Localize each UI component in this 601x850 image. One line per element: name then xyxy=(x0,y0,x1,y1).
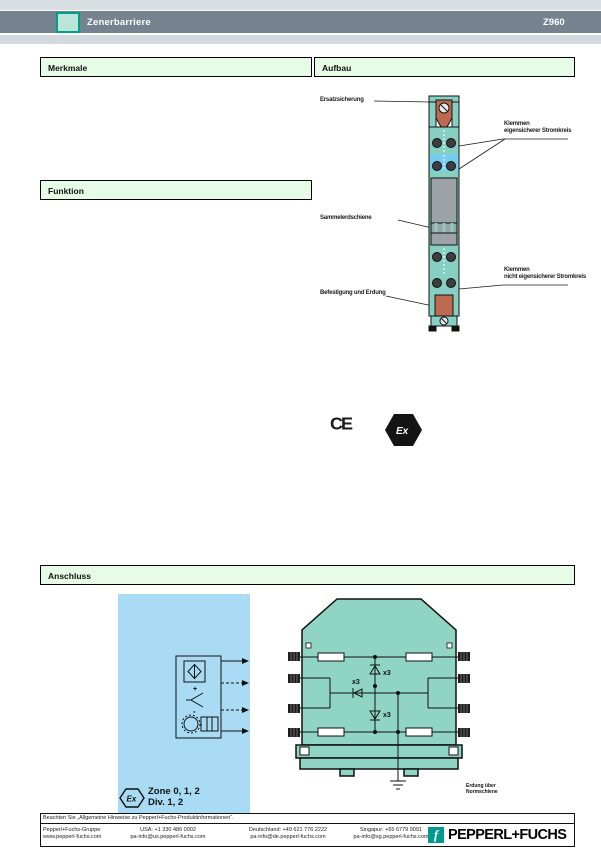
footer-usa-email: pa-info@us.pepperl-fuchs.com xyxy=(112,834,224,841)
brand-square-icon xyxy=(56,12,80,33)
footer-notice: Beachten Sie „Allgemeine Hinweise zu Pep… xyxy=(43,815,234,821)
model-number: Z960 xyxy=(543,17,565,28)
division-line: Div. 1, 2 xyxy=(148,797,200,808)
sensor-minus-sign: - xyxy=(193,707,196,716)
rail-foot-right xyxy=(404,769,418,776)
sensor-plus-sign: + xyxy=(193,686,197,693)
pf-logo-wordmark: PEPPERL+FUCHS xyxy=(448,827,566,843)
label-is-terminals-line2: eigensicherer Stromkreis xyxy=(504,128,571,135)
corner-screw-left xyxy=(306,643,311,648)
terminal-screw xyxy=(433,279,442,288)
device-shoulder-left xyxy=(429,102,436,127)
footer-usa-phone: USA: +1 330 486 0002 xyxy=(112,827,224,834)
label-earth-rail: Sammelerdschiene xyxy=(320,215,372,222)
zone-line: Zone 0, 1, 2 xyxy=(148,786,200,797)
label-mounting: Befestigung und Erdung xyxy=(320,290,386,297)
ex-hexagon-text: Ex xyxy=(396,426,409,437)
barrier-device-drawing xyxy=(429,96,459,331)
footer-col-germany: Deutschland: +49 621 776 2222 pa-info@de… xyxy=(228,827,348,841)
pf-logo-icon: f xyxy=(428,827,444,843)
zone-designation: Zone 0, 1, 2 Div. 1, 2 xyxy=(148,786,200,808)
footer-rule xyxy=(40,823,575,824)
resistor xyxy=(406,653,432,661)
field-devices-figure: + - Ex xyxy=(118,594,278,813)
ce-mark: CE xyxy=(330,415,351,435)
header-top-strip xyxy=(0,0,601,10)
ex-zone-hexagon-text: Ex xyxy=(127,795,137,804)
clamp-screw-left xyxy=(300,747,309,755)
clamp-screw-right xyxy=(449,747,458,755)
footer-group-url: www.pepperl-fuchs.com xyxy=(43,834,101,841)
rail-block-lower xyxy=(431,233,457,245)
terminal-screw xyxy=(433,139,442,148)
datasheet-page: Zenerbarriere Z960 Merkmale Aufbau Funkt… xyxy=(0,0,601,850)
terminal-screw xyxy=(433,253,442,262)
terminal-screw xyxy=(433,162,442,171)
terminal-screw xyxy=(447,162,456,171)
corner-screw-right xyxy=(447,643,452,648)
terminal-screw xyxy=(447,253,456,262)
label-is-terminals: Klemmen eigensicherer Stromkreis xyxy=(504,121,571,135)
base-foot-left xyxy=(429,326,436,331)
ground-symbol xyxy=(390,781,406,789)
signal-wires xyxy=(221,661,242,731)
multiplier-label-2: x3 xyxy=(352,679,360,686)
base-foot-right xyxy=(452,326,459,331)
multiplier-label-3: x3 xyxy=(383,712,391,719)
resistor xyxy=(318,653,344,661)
label-nonis-terminals-line1: Klemmen xyxy=(504,267,586,274)
section-funktion: Funktion xyxy=(40,180,312,200)
footer-germany-email: pa-info@de.pepperl-fuchs.com xyxy=(228,834,348,841)
resistor xyxy=(318,728,344,736)
mounting-foot xyxy=(435,295,453,316)
valve-actuator-icon xyxy=(184,717,198,731)
device-shoulder-right xyxy=(452,102,459,127)
footer-germany-phone: Deutschland: +49 621 776 2222 xyxy=(228,827,348,834)
ex-hexagon-mark: Ex xyxy=(383,412,423,448)
footer-col-group: Pepperl+Fuchs-Gruppe www.pepperl-fuchs.c… xyxy=(43,827,101,841)
valve-body xyxy=(201,717,218,731)
section-merkmale: Merkmale xyxy=(40,57,312,77)
multiplier-label-1: x3 xyxy=(383,670,391,677)
page-title: Zenerbarriere xyxy=(87,17,151,28)
label-nonis-terminals-line2: nicht eigensicherer Stromkreis xyxy=(504,274,586,281)
label-is-terminals-line1: Klemmen xyxy=(504,121,571,128)
barrier-circuit-figure: x3 x3 x3 Erdung über Normschiene xyxy=(280,594,575,809)
barrier-housing xyxy=(296,599,462,776)
section-anschluss: Anschluss xyxy=(40,565,575,585)
label-nonis-terminals: Klemmen nicht eigensicherer Stromkreis xyxy=(504,267,586,281)
housing-clamp-row xyxy=(296,745,462,758)
terminal-screw xyxy=(447,279,456,288)
footer-col-usa: USA: +1 330 486 0002 pa-info@us.pepperl-… xyxy=(112,827,224,841)
contact-icon xyxy=(191,693,203,707)
label-spare-fuse: Ersatzsicherung xyxy=(320,97,364,104)
section-aufbau: Aufbau xyxy=(314,57,575,77)
pepperl-fuchs-logo: f PEPPERL+FUCHS xyxy=(428,826,566,844)
resistor xyxy=(406,728,432,736)
header-bottom-strip xyxy=(0,35,601,44)
wire-arrowheads xyxy=(242,658,249,734)
din-rail-profile xyxy=(300,758,458,769)
rail-foot-left xyxy=(340,769,354,776)
rail-note-line2: Normschiene xyxy=(466,789,498,795)
terminal-screw xyxy=(447,139,456,148)
din-rail-block xyxy=(431,178,457,223)
footer-group-name: Pepperl+Fuchs-Gruppe xyxy=(43,827,101,834)
